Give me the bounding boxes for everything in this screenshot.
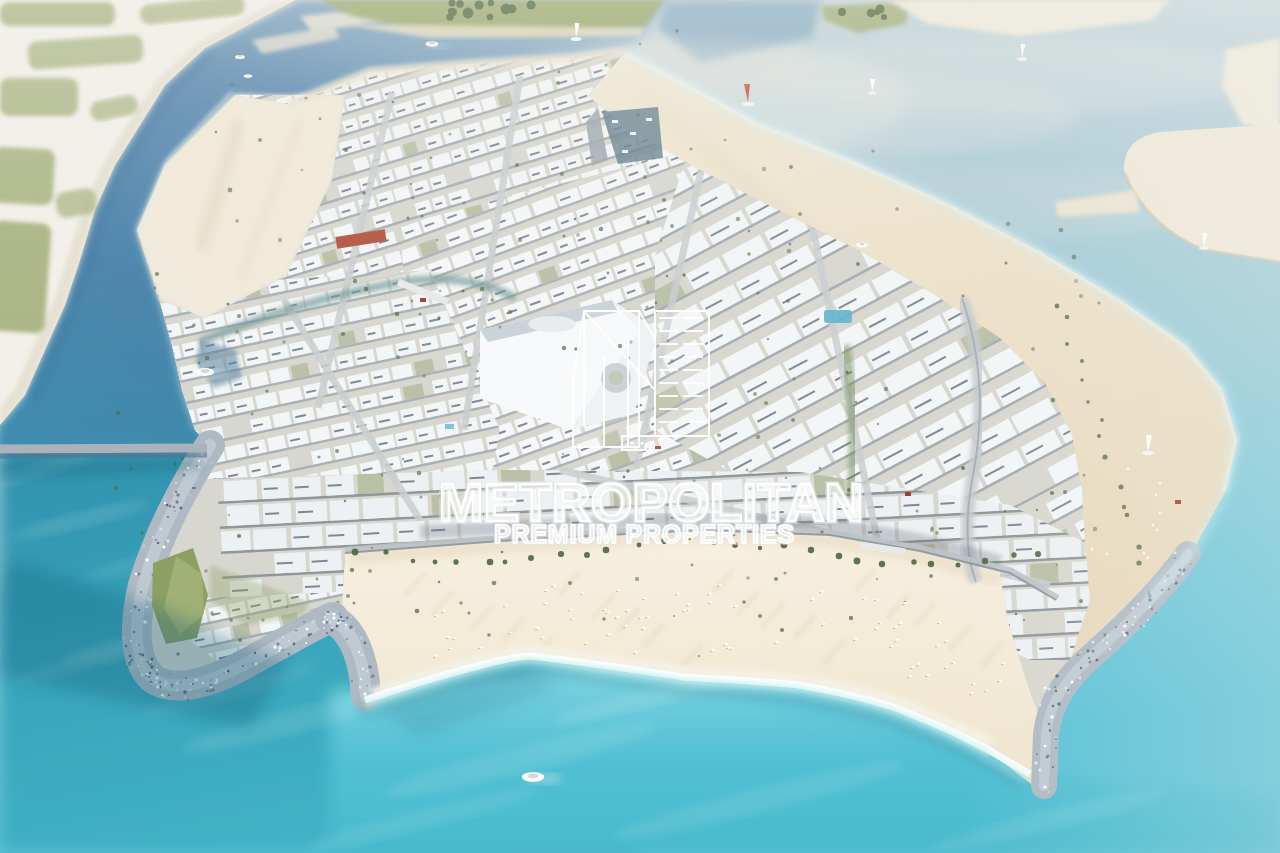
svg-text:PREMIUM PROPERTIES: PREMIUM PROPERTIES (494, 520, 794, 548)
